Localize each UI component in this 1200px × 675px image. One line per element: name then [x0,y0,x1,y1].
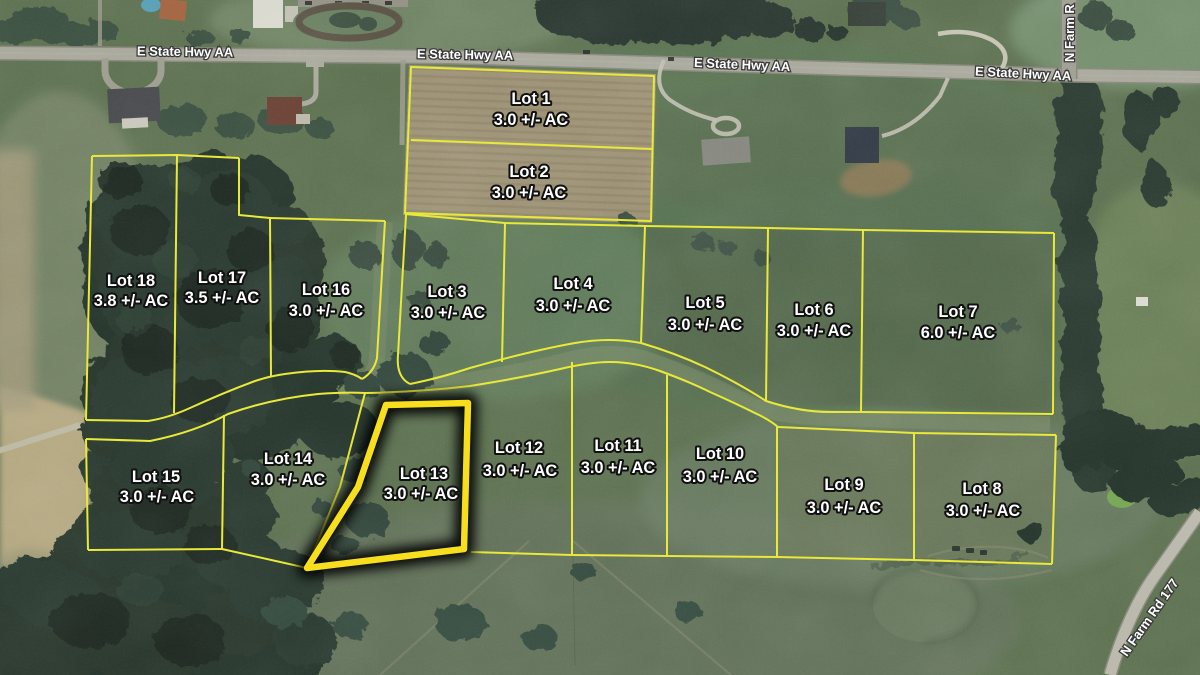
svg-text:3.0 +/- AC: 3.0 +/- AC [536,297,611,315]
svg-text:E State Hwy AA: E State Hwy AA [417,46,514,63]
svg-text:Lot 11: Lot 11 [594,437,641,455]
svg-text:Lot 14: Lot 14 [264,450,313,468]
svg-text:N Farm R: N Farm R [1062,4,1077,62]
svg-text:3.0 +/- AC: 3.0 +/- AC [411,304,486,322]
svg-text:3.0 +/- AC: 3.0 +/- AC [807,499,882,517]
svg-text:3.5 +/- AC: 3.5 +/- AC [185,289,260,307]
svg-text:6.0 +/- AC: 6.0 +/- AC [921,324,996,342]
svg-text:Lot 2: Lot 2 [509,163,548,181]
svg-text:Lot 1: Lot 1 [511,90,550,108]
svg-text:Lot 8: Lot 8 [962,480,1001,498]
svg-text:Lot 16: Lot 16 [302,281,350,299]
svg-text:Lot 17: Lot 17 [198,269,246,287]
svg-text:Lot 6: Lot 6 [794,301,833,319]
svg-text:Lot 4: Lot 4 [553,275,593,293]
svg-text:Lot 10: Lot 10 [696,445,744,463]
svg-text:Lot 9: Lot 9 [824,476,863,494]
svg-text:Lot 3: Lot 3 [427,283,466,301]
svg-text:3.0 +/- AC: 3.0 +/- AC [251,471,326,489]
svg-text:3.0 +/- AC: 3.0 +/- AC [483,462,558,480]
svg-text:Lot 13: Lot 13 [400,465,448,483]
svg-text:Lot 5: Lot 5 [685,294,724,312]
svg-text:Lot 12: Lot 12 [495,439,543,457]
svg-text:Lot 15: Lot 15 [132,468,180,486]
svg-text:3.0 +/- AC: 3.0 +/- AC [668,316,743,334]
svg-text:Lot 7: Lot 7 [938,303,977,321]
svg-text:3.0 +/- AC: 3.0 +/- AC [120,488,195,506]
svg-text:3.0 +/- AC: 3.0 +/- AC [384,485,459,503]
svg-text:3.0 +/- AC: 3.0 +/- AC [683,468,758,486]
svg-text:3.0 +/- AC: 3.0 +/- AC [492,184,567,202]
svg-text:3.0 +/- AC: 3.0 +/- AC [946,502,1021,520]
svg-text:Lot 18: Lot 18 [107,272,155,290]
svg-text:3.0 +/- AC: 3.0 +/- AC [289,302,364,320]
svg-text:E State Hwy AA: E State Hwy AA [137,43,234,59]
svg-text:3.0 +/- AC: 3.0 +/- AC [494,111,569,129]
svg-text:3.0 +/- AC: 3.0 +/- AC [581,459,656,477]
svg-text:3.8 +/- AC: 3.8 +/- AC [94,292,169,310]
svg-text:3.0 +/- AC: 3.0 +/- AC [777,322,852,340]
